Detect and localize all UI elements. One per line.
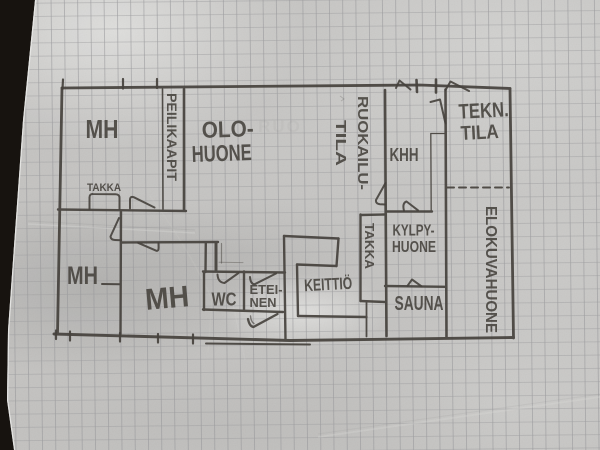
svg-text:HUONE: HUONE	[191, 139, 252, 167]
svg-text:KYLPY-: KYLPY-	[393, 223, 435, 240]
svg-text:MH: MH	[67, 262, 98, 290]
svg-text:ELOKUVAHUONE: ELOKUVAHUONE	[482, 206, 499, 333]
svg-text:NEN: NEN	[250, 295, 277, 310]
svg-text:MH: MH	[144, 280, 191, 317]
svg-text:TAKKA: TAKKA	[362, 223, 377, 270]
svg-text:KEITTIÖ: KEITTIÖ	[304, 274, 353, 295]
svg-text:PEILIKAAPIT: PEILIKAAPIT	[164, 93, 179, 182]
svg-text:MH: MH	[86, 114, 119, 144]
svg-text:TILA: TILA	[332, 120, 349, 166]
svg-text:RUO: RUO	[258, 117, 302, 136]
svg-text:HUONE: HUONE	[392, 239, 436, 256]
svg-text:TEKN.: TEKN.	[458, 98, 509, 124]
svg-text:KHH: KHH	[390, 145, 419, 165]
svg-text:TAKKA: TAKKA	[87, 182, 121, 194]
svg-text:SAUNA: SAUNA	[395, 293, 444, 315]
svg-text:WC: WC	[212, 290, 237, 310]
svg-text:RUOKAILU-: RUOKAILU-	[354, 96, 371, 190]
svg-text:TILA: TILA	[460, 121, 499, 145]
